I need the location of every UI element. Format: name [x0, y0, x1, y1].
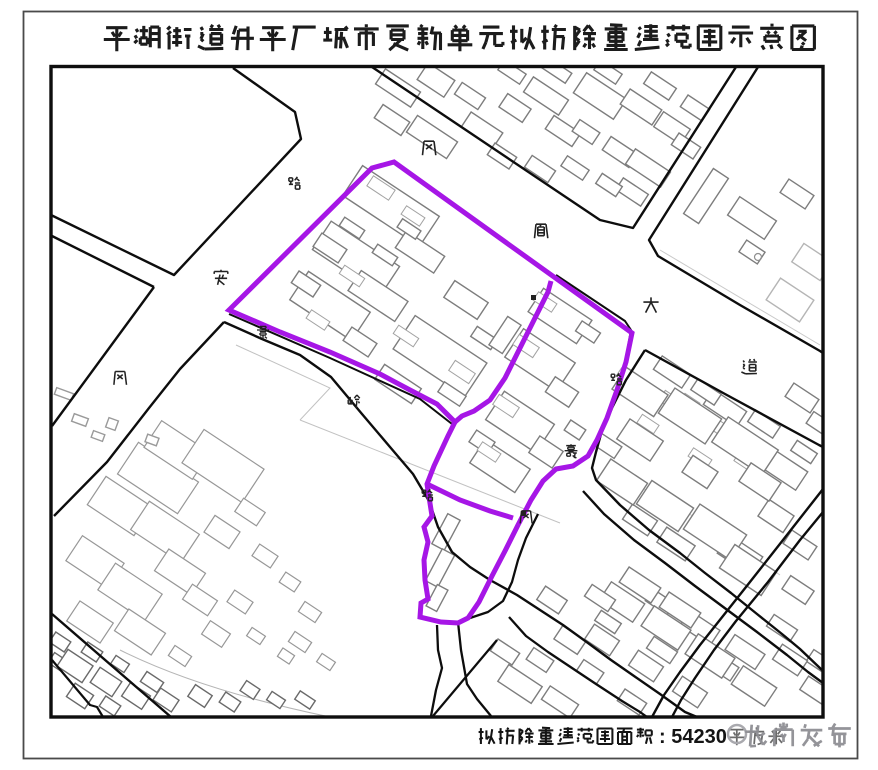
svg-text:: 54230: : 54230: [659, 726, 727, 748]
